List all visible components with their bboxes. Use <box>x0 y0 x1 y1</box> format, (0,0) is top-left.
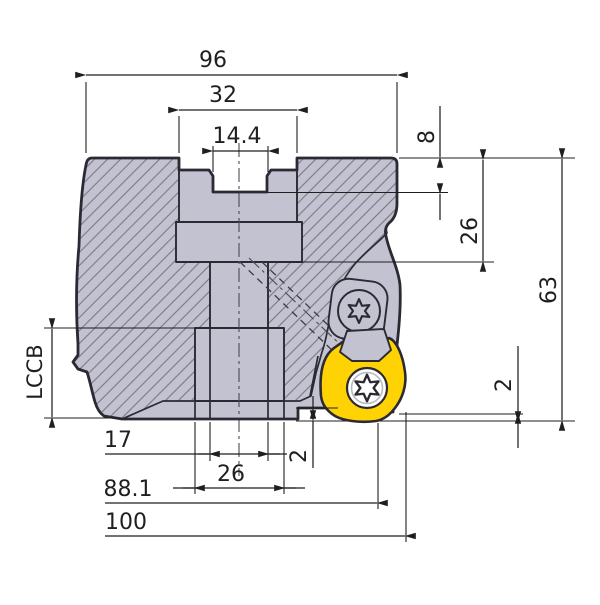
dim-label-26-hub: 26 <box>217 462 245 487</box>
clamp-screw-head <box>338 290 380 332</box>
dim-label-2-right: 2 <box>492 378 517 392</box>
dim-label-2-bottom: 2 <box>287 449 312 463</box>
dim-label-100: 100 <box>105 510 147 535</box>
dim-hub-26: 26 <box>173 422 305 494</box>
dim-label-17: 17 <box>104 428 132 453</box>
keyway-back-face <box>179 170 297 222</box>
milling-cutter-drawing: 96 32 14.4 8 26 63 2 2 <box>0 0 600 600</box>
dim-label-96: 96 <box>199 48 227 73</box>
technical-drawing-page: 96 32 14.4 8 26 63 2 2 <box>0 0 600 600</box>
dim-protrusion-right-2: 2 <box>492 346 518 448</box>
dim-label-8: 8 <box>415 130 440 144</box>
dim-label-88-1: 88.1 <box>104 477 153 502</box>
dim-label-26-depth: 26 <box>458 217 483 245</box>
dim-overall-height-63: 63 <box>537 159 562 420</box>
dim-label-lccb: LCCB <box>23 344 47 399</box>
clamp-wedge <box>340 329 391 361</box>
dim-label-32: 32 <box>209 83 237 108</box>
dim-label-14-4: 14.4 <box>213 124 262 149</box>
dim-keyway-width-14-4: 14.4 <box>213 124 268 172</box>
dim-label-63: 63 <box>537 276 562 304</box>
